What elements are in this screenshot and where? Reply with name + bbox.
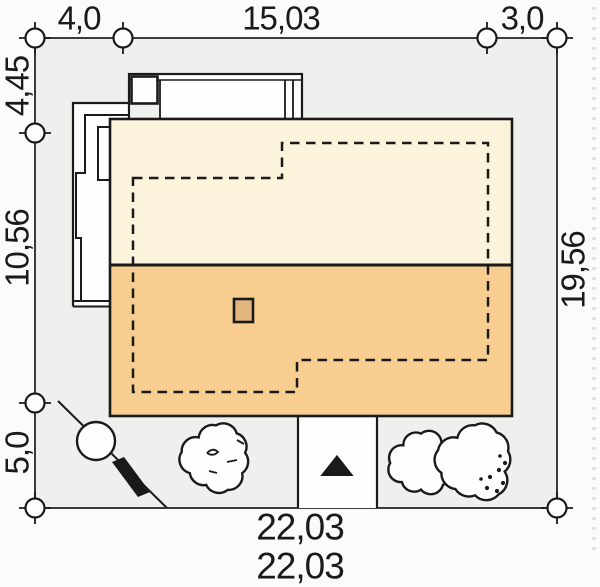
entrance-structure-recess xyxy=(131,104,159,118)
berry-dot xyxy=(495,489,499,493)
dim-right-label: 19,56 xyxy=(557,231,590,309)
site-plan: 4,0 15,03 3,0 4,45 10,56 5,0 19,56 22,03… xyxy=(0,0,600,551)
berry-dot xyxy=(485,486,489,490)
dim-bottom-clipped-label: 22,03 xyxy=(256,548,344,585)
dim-left-top-label: 4,45 xyxy=(1,56,34,116)
scan-artifact xyxy=(592,0,596,551)
dimension-marker xyxy=(26,499,45,518)
dim-top-right-label: 3,0 xyxy=(501,2,544,35)
dimension-marker xyxy=(548,29,567,48)
dimension-marker xyxy=(26,394,45,413)
dim-top-left-label: 4,0 xyxy=(58,2,101,35)
north-arrow-icon: ▲ xyxy=(309,446,365,482)
dimension-marker xyxy=(26,124,45,143)
dim-left-bottom-label: 5,0 xyxy=(1,432,34,475)
entrance-chimney xyxy=(132,77,158,104)
dim-bottom-label: 22,03 xyxy=(256,509,344,546)
dimension-marker xyxy=(114,29,133,48)
roof-upper-slope xyxy=(110,119,512,265)
dim-top-middle-label: 15,03 xyxy=(242,2,320,35)
chimney xyxy=(234,299,253,322)
entrance-structure xyxy=(129,74,302,119)
roof-lower-slope xyxy=(110,265,512,416)
berry-dot xyxy=(497,468,501,472)
site-plan-drawing xyxy=(0,0,600,551)
berry-dot xyxy=(479,477,483,481)
utility-pole-circle xyxy=(77,422,115,460)
dimension-marker xyxy=(26,29,45,48)
berry-dot xyxy=(503,461,507,465)
house-roof xyxy=(110,119,512,416)
berry-dot xyxy=(501,481,505,485)
berry-dot xyxy=(498,454,502,458)
berry-dot xyxy=(488,475,492,479)
dimension-marker xyxy=(548,499,567,518)
dim-left-middle-label: 10,56 xyxy=(1,209,34,287)
dimension-marker xyxy=(478,29,497,48)
